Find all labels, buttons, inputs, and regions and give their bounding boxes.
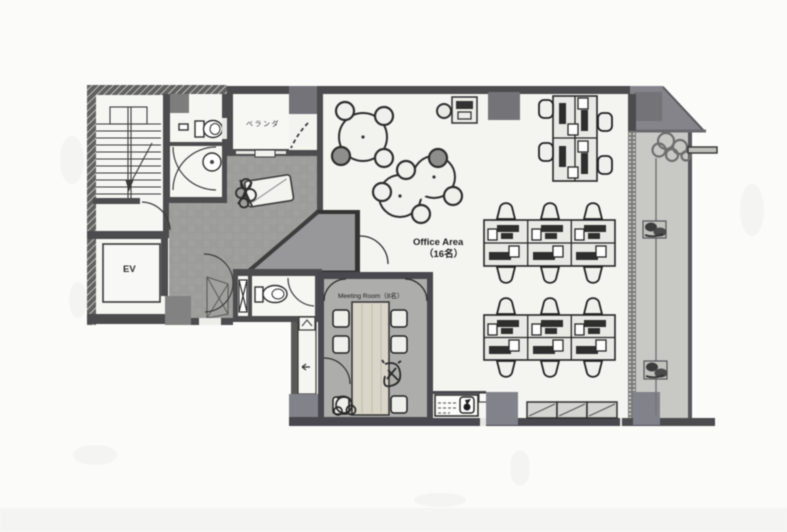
svg-text:ベランダ: ベランダ (246, 119, 280, 128)
svg-text:Meeting Room（8名）: Meeting Room（8名） (338, 291, 403, 300)
svg-text:（16名）: （16名） (424, 248, 463, 260)
svg-text:EV: EV (123, 264, 136, 275)
svg-text:Office Area: Office Area (413, 237, 464, 248)
